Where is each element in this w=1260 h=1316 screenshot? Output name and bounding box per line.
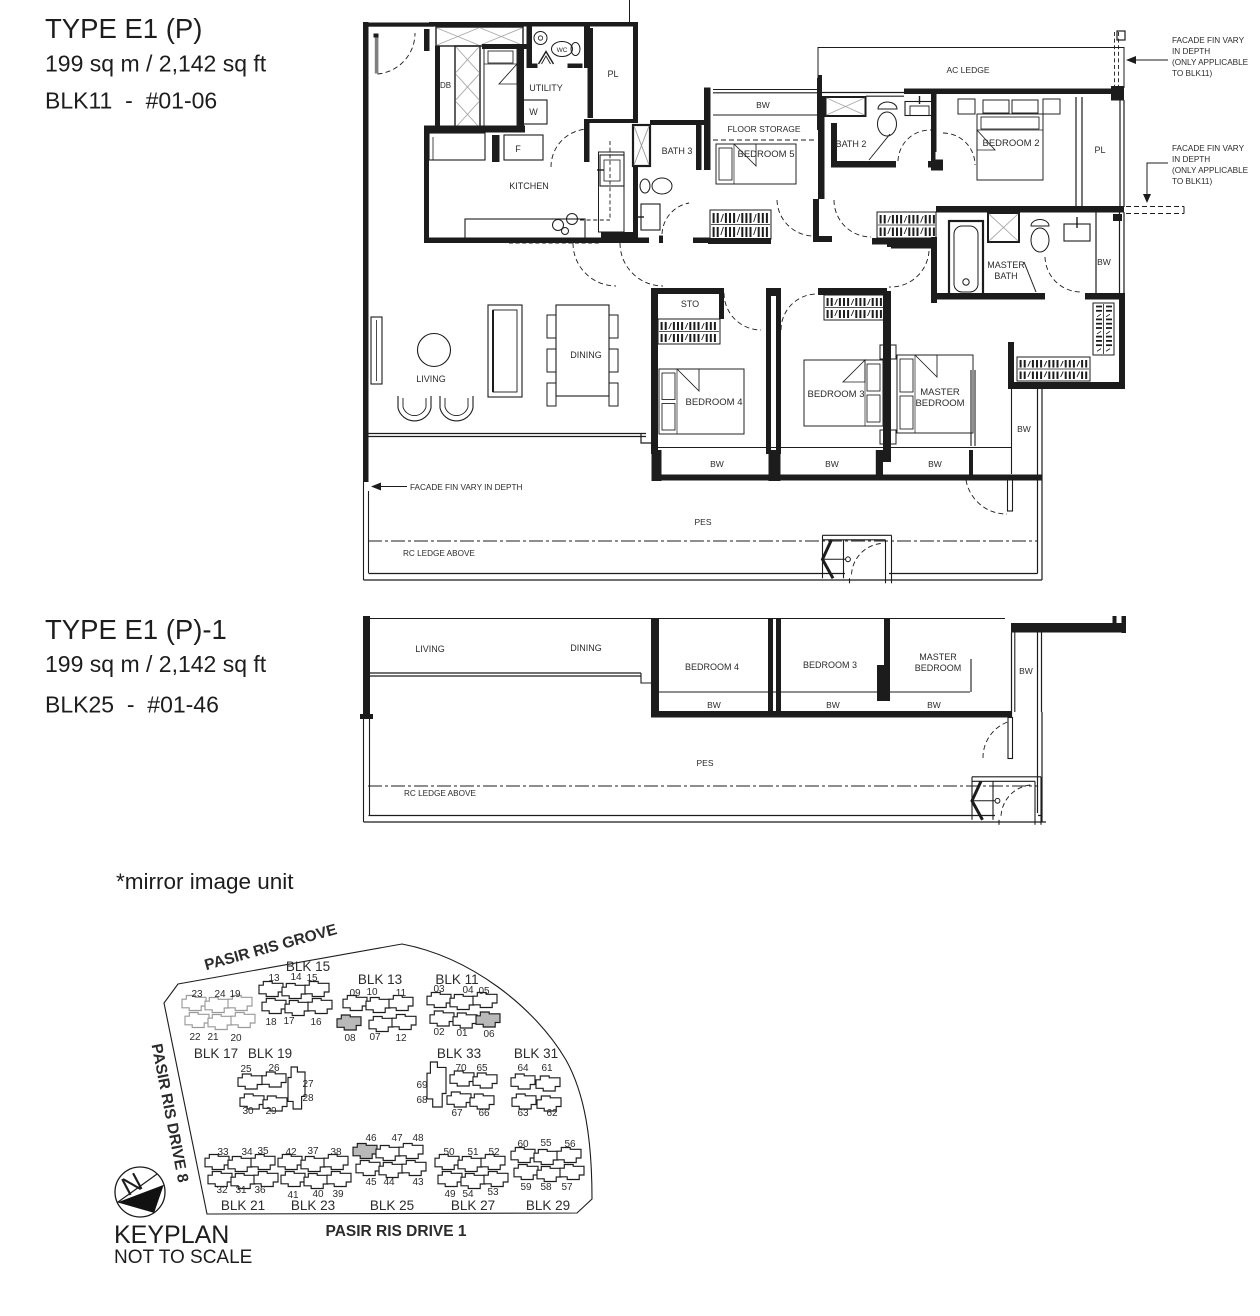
svg-text:PL: PL	[607, 69, 618, 79]
svg-text:KEYPLAN: KEYPLAN	[114, 1221, 229, 1249]
svg-text:BLK25 - #01-46: BLK25 - #01-46	[45, 692, 219, 718]
svg-text:33: 33	[217, 1147, 229, 1158]
svg-text:BEDROOM 3: BEDROOM 3	[803, 660, 857, 670]
svg-text:W: W	[529, 107, 538, 117]
svg-text:30: 30	[242, 1106, 254, 1117]
svg-text:BW: BW	[1097, 257, 1111, 267]
svg-text:FACADE FIN VARY: FACADE FIN VARY	[1172, 36, 1245, 45]
svg-text:48: 48	[412, 1133, 424, 1144]
svg-text:BLK11 - #01-06: BLK11 - #01-06	[45, 88, 217, 114]
svg-text:54: 54	[462, 1189, 474, 1200]
svg-text:BEDROOM: BEDROOM	[915, 663, 962, 673]
svg-text:63: 63	[517, 1108, 529, 1119]
svg-text:BATH 3: BATH 3	[662, 146, 693, 156]
svg-text:69: 69	[416, 1080, 428, 1091]
svg-text:TO BLK11): TO BLK11)	[1172, 177, 1212, 186]
svg-text:38: 38	[330, 1147, 342, 1158]
svg-text:57: 57	[561, 1182, 573, 1193]
svg-text:WC: WC	[557, 47, 568, 54]
svg-text:BW: BW	[927, 700, 941, 710]
svg-text:62: 62	[546, 1108, 558, 1119]
svg-text:32: 32	[216, 1185, 228, 1196]
svg-text:(ONLY APPLICABLE: (ONLY APPLICABLE	[1172, 58, 1249, 67]
svg-text:F: F	[515, 144, 521, 154]
svg-text:LIVING: LIVING	[415, 644, 445, 654]
svg-text:199 sq m / 2,142 sq ft: 199 sq m / 2,142 sq ft	[45, 51, 267, 77]
svg-text:UTILITY: UTILITY	[529, 83, 563, 93]
svg-text:35: 35	[257, 1146, 269, 1157]
svg-text:31: 31	[235, 1185, 247, 1196]
svg-text:FACADE FIN VARY: FACADE FIN VARY	[1172, 144, 1245, 153]
svg-text:FLOOR STORAGE: FLOOR STORAGE	[727, 124, 800, 134]
svg-text:61: 61	[541, 1063, 553, 1074]
svg-text:BW: BW	[825, 459, 839, 469]
svg-text:46: 46	[365, 1133, 377, 1144]
svg-text:FACADE FIN VARY IN DEPTH: FACADE FIN VARY IN DEPTH	[410, 483, 522, 492]
svg-text:STO: STO	[681, 299, 699, 309]
svg-text:BW: BW	[1017, 424, 1031, 434]
svg-text:DB: DB	[440, 81, 451, 90]
svg-text:BEDROOM 2: BEDROOM 2	[982, 138, 1039, 149]
svg-text:17: 17	[283, 1016, 295, 1027]
svg-text:MASTER: MASTER	[987, 260, 1025, 270]
svg-text:59: 59	[520, 1182, 532, 1193]
svg-text:49: 49	[444, 1189, 456, 1200]
svg-text:55: 55	[540, 1138, 552, 1149]
svg-text:PES: PES	[696, 758, 713, 768]
svg-text:BW: BW	[707, 700, 721, 710]
svg-text:BW: BW	[756, 100, 770, 110]
svg-text:MASTER: MASTER	[919, 652, 957, 662]
svg-text:MASTER: MASTER	[920, 387, 960, 398]
svg-text:15: 15	[306, 973, 318, 984]
svg-text:27: 27	[302, 1079, 314, 1090]
svg-text:39: 39	[332, 1189, 344, 1200]
svg-text:28: 28	[302, 1093, 314, 1104]
svg-text:19: 19	[229, 989, 241, 1000]
svg-text:BW: BW	[826, 700, 840, 710]
svg-text:BEDROOM 4: BEDROOM 4	[685, 662, 739, 672]
svg-text:BLK 21: BLK 21	[221, 1198, 265, 1213]
svg-text:(ONLY APPLICABLE: (ONLY APPLICABLE	[1172, 166, 1249, 175]
svg-text:65: 65	[476, 1063, 488, 1074]
svg-text:01: 01	[456, 1028, 468, 1039]
svg-text:IN DEPTH: IN DEPTH	[1172, 47, 1210, 56]
svg-text:05: 05	[478, 986, 490, 997]
svg-text:64: 64	[517, 1063, 529, 1074]
svg-text:12: 12	[395, 1033, 407, 1044]
svg-text:BATH 2: BATH 2	[836, 139, 867, 149]
svg-text:18: 18	[265, 1017, 277, 1028]
svg-text:PASIR RIS DRIVE 1: PASIR RIS DRIVE 1	[326, 1223, 467, 1240]
svg-text:42: 42	[285, 1147, 297, 1158]
svg-text:20: 20	[230, 1033, 242, 1044]
svg-text:BLK 25: BLK 25	[370, 1198, 414, 1213]
svg-text:BLK 27: BLK 27	[451, 1198, 495, 1213]
svg-text:68: 68	[416, 1095, 428, 1106]
svg-text:25: 25	[240, 1064, 252, 1075]
svg-text:03: 03	[433, 984, 445, 995]
svg-text:BLK 17: BLK 17	[194, 1046, 238, 1061]
svg-text:23: 23	[191, 989, 203, 1000]
svg-text:10: 10	[366, 987, 378, 998]
svg-text:21: 21	[207, 1032, 219, 1043]
svg-text:*mirror image unit: *mirror image unit	[116, 869, 294, 894]
svg-text:07: 07	[369, 1032, 381, 1043]
svg-text:LIVING: LIVING	[416, 374, 446, 384]
svg-text:22: 22	[189, 1032, 201, 1043]
svg-text:37: 37	[307, 1146, 319, 1157]
svg-text:60: 60	[517, 1139, 529, 1150]
svg-text:53: 53	[487, 1187, 499, 1198]
svg-text:29: 29	[265, 1106, 277, 1117]
svg-text:34: 34	[241, 1147, 253, 1158]
svg-text:RC LEDGE ABOVE: RC LEDGE ABOVE	[404, 789, 476, 798]
svg-text:199 sq m / 2,142 sq ft: 199 sq m / 2,142 sq ft	[45, 651, 267, 677]
svg-text:BLK 13: BLK 13	[358, 972, 402, 987]
svg-text:06: 06	[483, 1029, 495, 1040]
svg-text:50: 50	[443, 1147, 455, 1158]
svg-text:AC LEDGE: AC LEDGE	[947, 65, 990, 75]
svg-text:14: 14	[290, 972, 302, 983]
svg-text:44: 44	[383, 1177, 395, 1188]
svg-text:56: 56	[564, 1139, 576, 1150]
svg-text:DINING: DINING	[570, 643, 602, 653]
svg-text:TYPE E1 (P): TYPE E1 (P)	[45, 13, 202, 44]
svg-text:BEDROOM 3: BEDROOM 3	[807, 389, 864, 400]
svg-text:11: 11	[396, 988, 407, 999]
svg-text:04: 04	[462, 985, 474, 996]
svg-text:09: 09	[349, 988, 361, 999]
svg-text:BATH: BATH	[994, 271, 1017, 281]
svg-text:NOT TO SCALE: NOT TO SCALE	[114, 1247, 252, 1268]
svg-text:RC LEDGE ABOVE: RC LEDGE ABOVE	[403, 549, 475, 558]
svg-text:BEDROOM: BEDROOM	[915, 398, 964, 409]
svg-text:IN DEPTH: IN DEPTH	[1172, 155, 1210, 164]
svg-text:40: 40	[312, 1189, 324, 1200]
svg-text:47: 47	[391, 1133, 403, 1144]
svg-text:67: 67	[451, 1108, 463, 1119]
svg-text:36: 36	[254, 1185, 266, 1196]
svg-text:DINING: DINING	[570, 350, 602, 360]
svg-text:BW: BW	[1019, 666, 1033, 676]
svg-text:BEDROOM 4: BEDROOM 4	[685, 397, 742, 408]
svg-text:PL: PL	[1094, 145, 1105, 155]
svg-text:BW: BW	[928, 459, 942, 469]
svg-text:TO BLK11): TO BLK11)	[1172, 69, 1212, 78]
svg-text:58: 58	[540, 1182, 552, 1193]
svg-text:70: 70	[455, 1063, 467, 1074]
svg-text:43: 43	[412, 1177, 424, 1188]
svg-text:BEDROOM 5: BEDROOM 5	[737, 149, 794, 160]
svg-text:13: 13	[268, 973, 280, 984]
svg-text:08: 08	[344, 1033, 356, 1044]
svg-text:TYPE E1 (P)-1: TYPE E1 (P)-1	[45, 614, 227, 645]
svg-text:41: 41	[287, 1190, 299, 1201]
svg-text:BW: BW	[710, 459, 724, 469]
svg-text:24: 24	[214, 989, 226, 1000]
svg-text:51: 51	[467, 1147, 479, 1158]
svg-text:BLK 29: BLK 29	[526, 1198, 570, 1213]
svg-text:BLK 19: BLK 19	[248, 1046, 292, 1061]
svg-text:66: 66	[478, 1108, 490, 1119]
svg-text:BLK 31: BLK 31	[514, 1046, 558, 1061]
svg-text:16: 16	[310, 1017, 322, 1028]
svg-text:02: 02	[433, 1027, 445, 1038]
svg-text:BLK 33: BLK 33	[437, 1046, 481, 1061]
svg-text:26: 26	[268, 1063, 280, 1074]
svg-text:52: 52	[488, 1147, 500, 1158]
svg-text:KITCHEN: KITCHEN	[509, 181, 549, 191]
svg-text:45: 45	[365, 1177, 377, 1188]
svg-text:PES: PES	[694, 517, 711, 527]
